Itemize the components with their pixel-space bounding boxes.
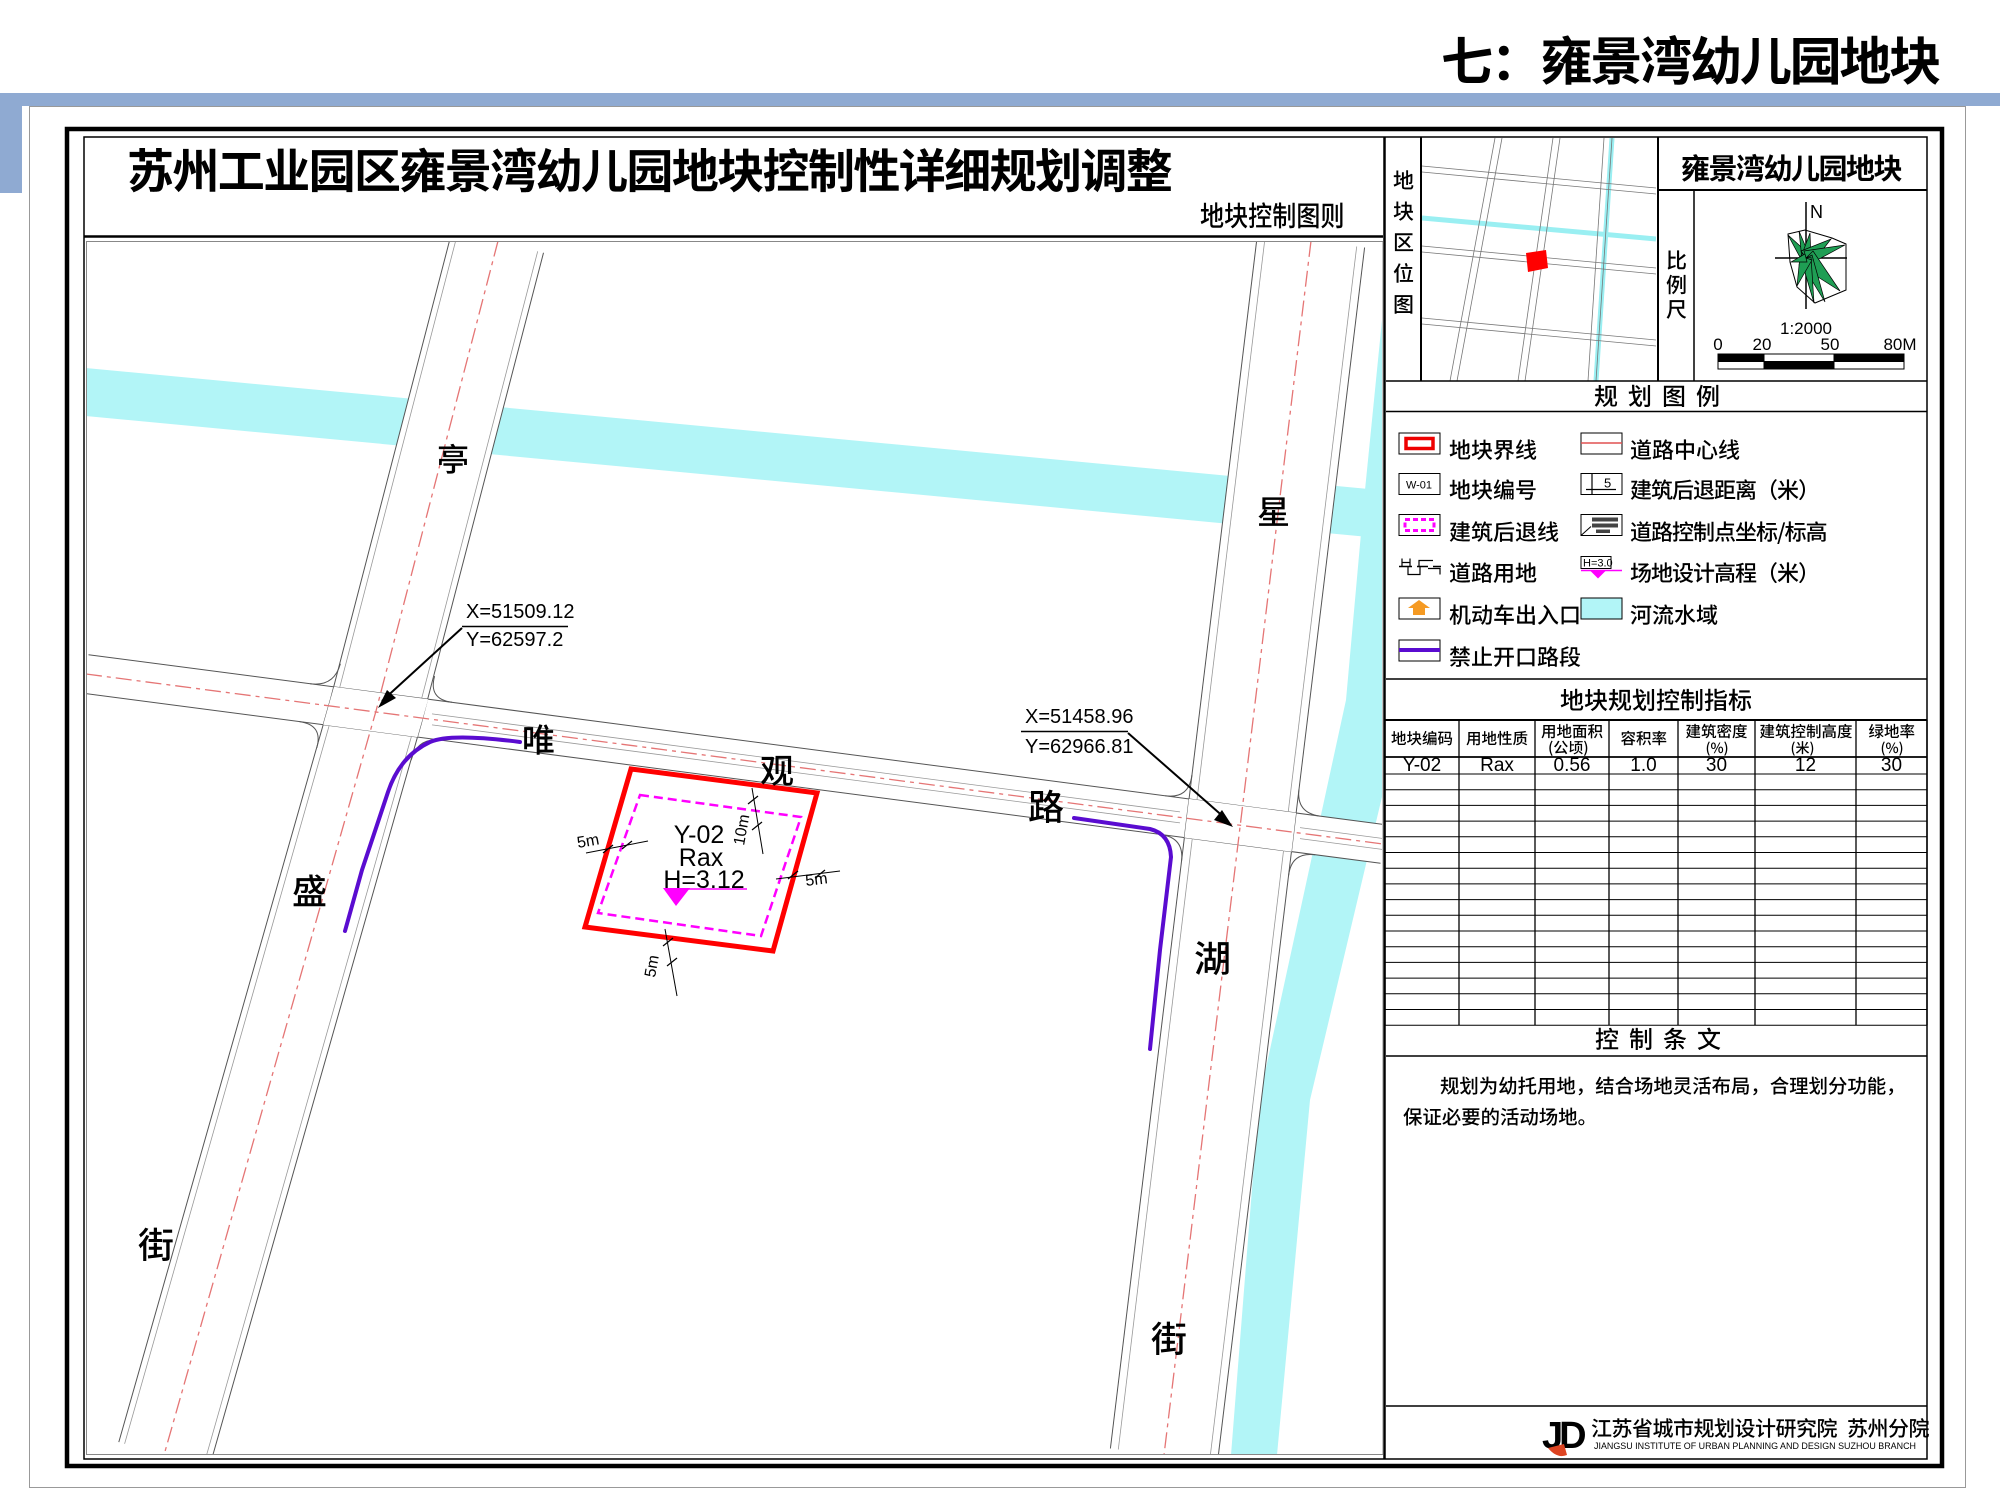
svg-text:Rax: Rax	[1480, 755, 1514, 776]
svg-text:30: 30	[1881, 755, 1902, 776]
svg-text:X=51509.12: X=51509.12	[466, 601, 574, 623]
svg-text:Y-02: Y-02	[1403, 755, 1441, 776]
svg-text:Y=62597.2: Y=62597.2	[466, 629, 563, 651]
svg-text:0.56: 0.56	[1554, 755, 1591, 776]
svg-text:W-01: W-01	[1406, 480, 1432, 492]
svg-text:20: 20	[1753, 335, 1772, 354]
svg-text:30: 30	[1706, 755, 1727, 776]
svg-text:N: N	[1810, 202, 1823, 222]
svg-text:Y=62966.81: Y=62966.81	[1025, 736, 1133, 758]
svg-text:12: 12	[1795, 755, 1816, 776]
svg-text:X=51458.96: X=51458.96	[1025, 706, 1133, 728]
svg-text:1.0: 1.0	[1630, 755, 1656, 776]
svg-text:5: 5	[1604, 476, 1611, 491]
svg-text:80M: 80M	[1883, 335, 1916, 354]
svg-text:0: 0	[1713, 335, 1722, 354]
svg-text:5m: 5m	[804, 870, 828, 890]
svg-text:H=3.0: H=3.0	[1583, 558, 1613, 570]
svg-text:JIANGSU INSTITUTE OF URBAN PLA: JIANGSU INSTITUTE OF URBAN PLANNING AND …	[1594, 1441, 1916, 1452]
svg-text:50: 50	[1821, 335, 1840, 354]
